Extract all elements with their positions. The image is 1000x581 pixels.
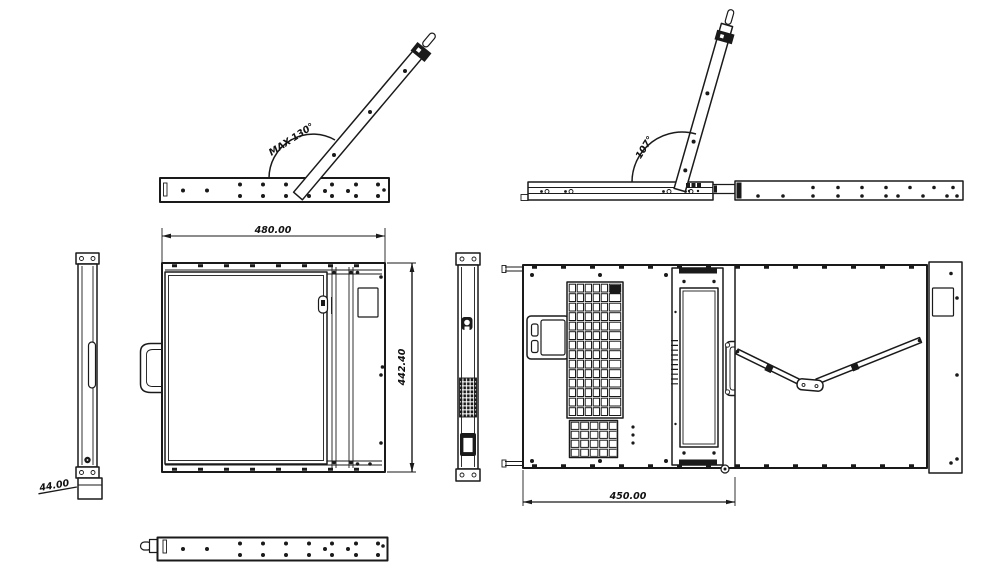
vent-grille [460, 378, 477, 417]
dsub-connector [460, 433, 476, 456]
bezel-window [680, 288, 718, 447]
slide-rail-bar [160, 178, 389, 202]
rear-panel-view [456, 253, 480, 481]
arm-latch-hook [421, 32, 436, 48]
side-view-extended-open: 107° [521, 9, 963, 201]
arm-latch-hook-open [725, 9, 735, 25]
rear-flange [929, 262, 962, 473]
technical-drawing-page: MAX-130° [0, 0, 1000, 581]
display-arm-open [674, 23, 733, 191]
flange-label-plate [933, 288, 954, 316]
bottom-rail-view [141, 538, 388, 561]
numeric-keypad [570, 421, 618, 458]
lcd-lid [165, 272, 327, 464]
side-view-max-open: MAX-130° [160, 32, 437, 202]
power-connector [462, 317, 473, 330]
keyboard [567, 282, 623, 418]
touchpad-button-left [532, 324, 539, 336]
handle-slot [89, 342, 96, 388]
rear-foot [78, 478, 102, 499]
front-bezel-strip [672, 268, 729, 473]
top-view-open: 450.00 [502, 262, 962, 506]
depth-dim-label: 442.40 [397, 348, 408, 386]
rail-plug-body [150, 540, 158, 553]
top-view-closed: 480.00 [141, 225, 417, 472]
front-handle [141, 344, 163, 393]
rail-bar [158, 538, 388, 561]
rail-stubs [502, 266, 523, 468]
inner-depth-dimension: 450.00 [523, 470, 735, 506]
label-plate [358, 288, 378, 317]
outer-slide-rail [735, 181, 963, 200]
touchpad-button-right [532, 341, 539, 353]
open-angle-label: 107° [634, 134, 656, 161]
max-angle-label: MAX-130° [267, 121, 316, 158]
scissor-joint-plate [797, 378, 824, 391]
touchpad [527, 316, 569, 359]
display-arm [294, 44, 428, 200]
side-panel-view: 44.00 [37, 253, 102, 499]
width-dim-label: 480.00 [254, 225, 292, 236]
height-dimension: 44.00 [37, 477, 77, 495]
rail-end-tab [521, 195, 528, 201]
width-dimension: 480.00 [162, 225, 385, 262]
inner-depth-dim-label: 450.00 [609, 491, 647, 502]
dimension-drawing-canvas: MAX-130° [0, 0, 1000, 581]
